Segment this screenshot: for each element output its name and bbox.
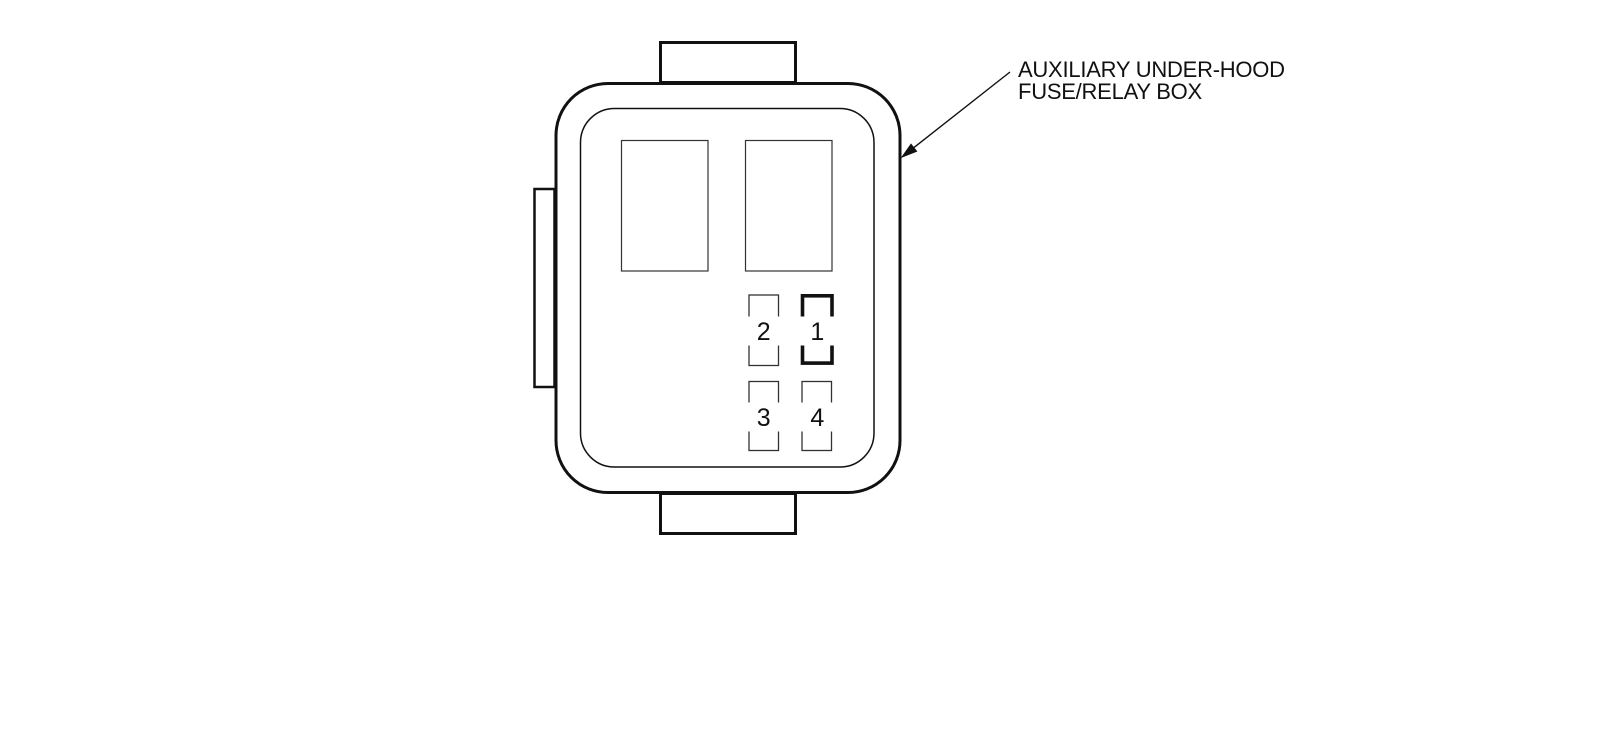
svg-text:2: 2 xyxy=(757,318,771,346)
svg-text:1: 1 xyxy=(810,318,824,346)
svg-text:4: 4 xyxy=(810,404,824,432)
svg-text:3: 3 xyxy=(757,404,771,432)
svg-text:FUSE/RELAY BOX: FUSE/RELAY BOX xyxy=(1018,79,1203,104)
